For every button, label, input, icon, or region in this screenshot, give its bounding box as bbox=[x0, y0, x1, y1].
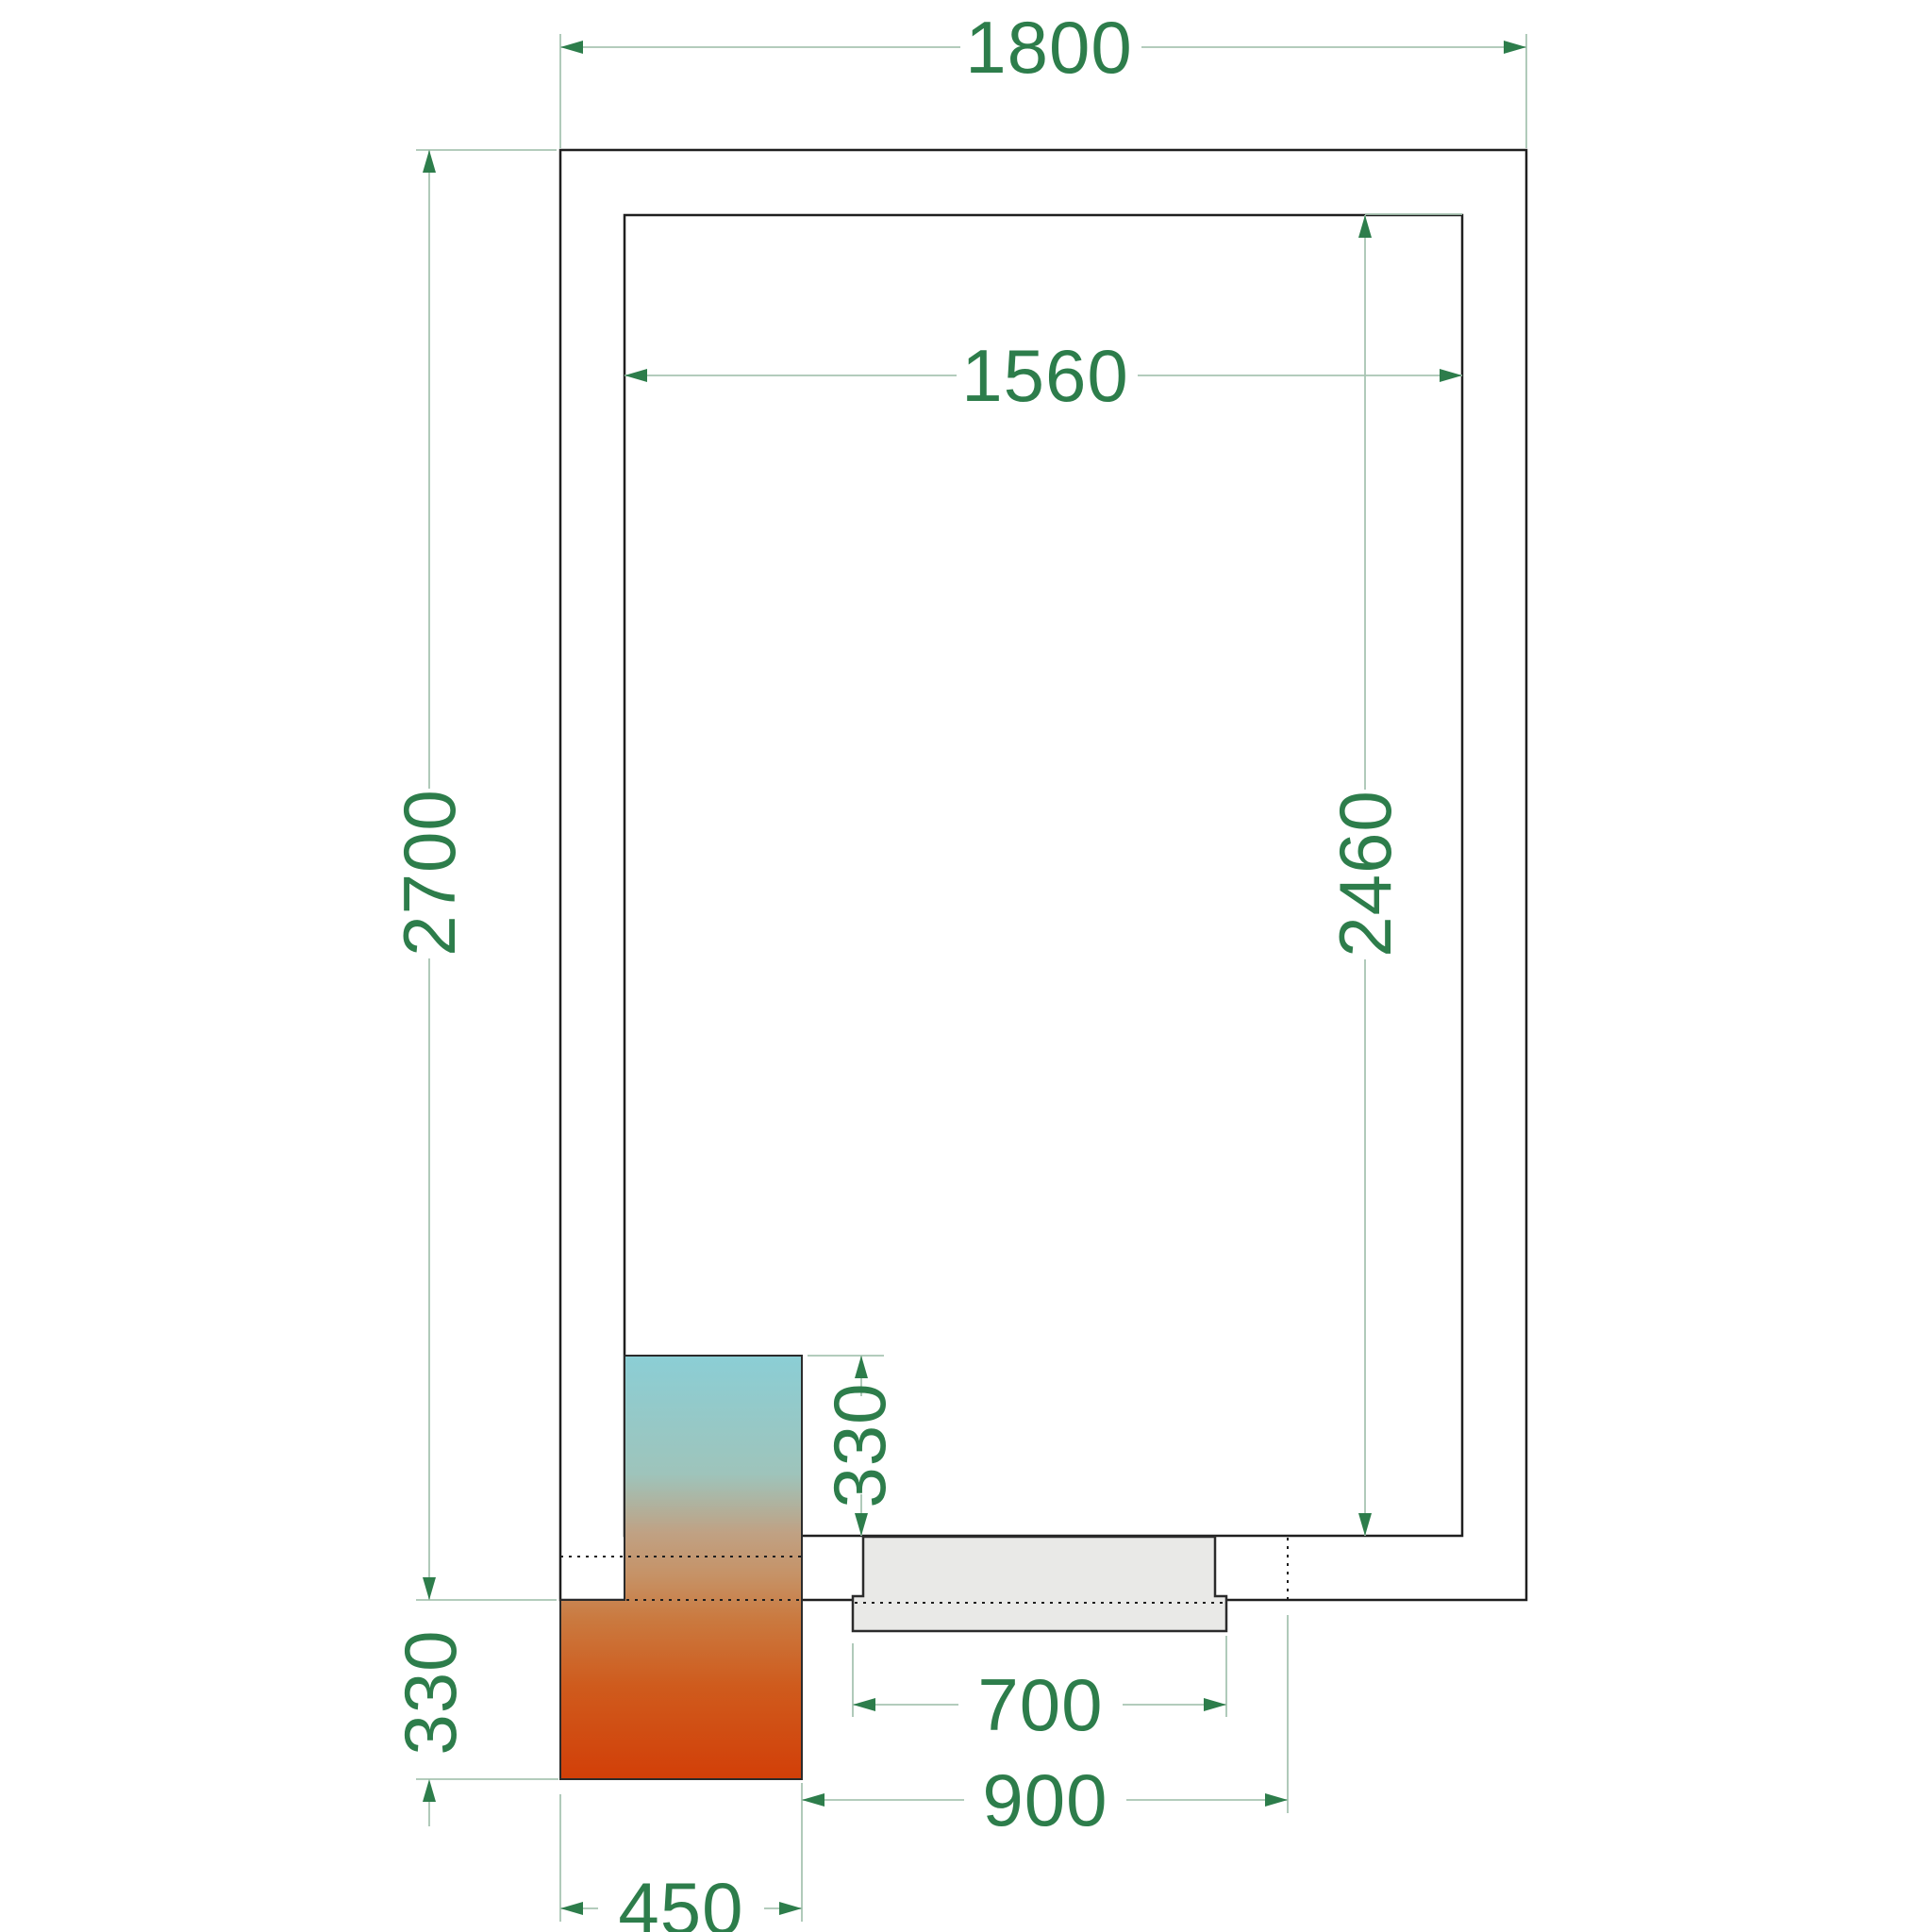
arrowhead-left bbox=[625, 369, 647, 382]
cold-room-plan-drawing: 1800 1560 2700 2460 330 bbox=[0, 0, 1932, 1932]
arrowhead-left bbox=[802, 1793, 824, 1807]
dim-unit-inside-depth-label: 330 bbox=[818, 1382, 901, 1507]
door bbox=[853, 1537, 1288, 1631]
dim-inner-depth: 2460 bbox=[1324, 214, 1462, 1536]
arrowhead-left bbox=[853, 1698, 875, 1711]
dim-unit-width-label: 450 bbox=[618, 1867, 743, 1932]
dim-outer-depth: 2700 bbox=[388, 150, 557, 1600]
arrowhead-right bbox=[1204, 1698, 1226, 1711]
door-leaf bbox=[853, 1537, 1226, 1631]
arrowhead-right bbox=[1440, 369, 1462, 382]
refrigeration-unit-body bbox=[560, 1356, 802, 1779]
dim-door-opening-width: 900 bbox=[802, 1615, 1288, 1922]
refrigeration-unit bbox=[560, 1356, 802, 1779]
arrowhead-left bbox=[560, 1902, 583, 1915]
arrowhead-top bbox=[855, 1356, 868, 1378]
plan-canvas: 1800 1560 2700 2460 330 bbox=[0, 0, 1932, 1932]
dim-inner-width-label: 1560 bbox=[961, 334, 1129, 417]
dim-inner-width: 1560 bbox=[625, 334, 1462, 417]
dim-inner-depth-label: 2460 bbox=[1324, 790, 1407, 958]
dim-outer-width: 1800 bbox=[560, 6, 1526, 148]
dim-unit-width: 450 bbox=[560, 1794, 802, 1932]
dim-unit-outside-depth-label: 330 bbox=[389, 1629, 472, 1755]
dim-door-opening-width-label: 900 bbox=[982, 1758, 1108, 1841]
dim-door-leaf-width-label: 700 bbox=[977, 1663, 1103, 1746]
arrowhead-bottom bbox=[1358, 1513, 1372, 1536]
arrowhead-right bbox=[1265, 1793, 1288, 1807]
arrowhead-bottom bbox=[855, 1513, 868, 1536]
dim-unit-inside-depth: 330 bbox=[808, 1356, 901, 1536]
dim-unit-outside-depth: 330 bbox=[389, 1629, 558, 1826]
arrowhead-top bbox=[1358, 215, 1372, 238]
arrowhead-top bbox=[423, 150, 436, 173]
arrowhead-right bbox=[1504, 41, 1526, 54]
arrowhead-bottom bbox=[423, 1577, 436, 1600]
arrowhead-left bbox=[560, 41, 583, 54]
arrowhead-right bbox=[779, 1902, 802, 1915]
dim-door-leaf-width: 700 bbox=[853, 1636, 1226, 1746]
arrowhead-bottom bbox=[423, 1779, 436, 1802]
dim-outer-width-label: 1800 bbox=[965, 6, 1133, 89]
dim-outer-depth-label: 2700 bbox=[388, 789, 471, 957]
